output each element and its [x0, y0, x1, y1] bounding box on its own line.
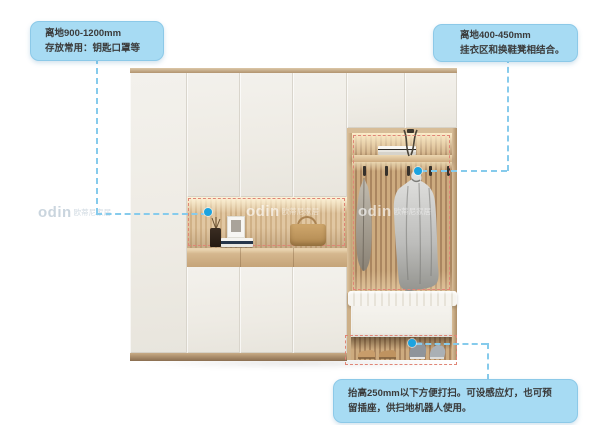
upper-door-2 [240, 73, 293, 197]
lower-door-1 [187, 267, 240, 353]
upper-door-3 [293, 73, 347, 197]
watermark-brand: odin [38, 204, 72, 221]
leader-dot-niche [204, 208, 212, 216]
leader-line-left-vertical [96, 58, 98, 214]
bench-drawer [351, 306, 452, 337]
callout-bottom: 抬高250mm以下方便打扫。可设感应灯，也可预 留插座，供扫地机器人使用。 [333, 379, 578, 423]
handbag [290, 224, 326, 246]
right-upper-door-2 [405, 73, 457, 128]
callout-line: 存放常用：钥匙口罩等 [45, 41, 157, 56]
leader-line-right-horizontal [421, 170, 507, 172]
photo-frame [227, 216, 245, 238]
diffuser-bottle [210, 228, 221, 247]
lower-door-2 [240, 267, 293, 353]
entryway-cabinet-infographic: odin 欧蒂尼家居 odin 欧蒂尼家居 odin 欧蒂尼家居 离地900-1… [0, 0, 610, 425]
right-upper-door-1 [347, 73, 405, 128]
leader-line-bottom-horizontal [416, 343, 487, 345]
callout-line: 离地900-1200mm [45, 26, 157, 41]
drawer-seam-2 [293, 248, 294, 267]
drawer-seam-1 [240, 248, 241, 267]
callout-line: 留插座，供扫地机器人使用。 [348, 401, 569, 416]
upper-door-1 [187, 73, 240, 197]
hanging-umbrella [351, 176, 377, 272]
leader-dot-hooks [414, 167, 422, 175]
leader-dot-shoe-space [408, 339, 416, 347]
callout-top-right: 离地400-450mm 挂衣区和换鞋凳相结合。 [433, 24, 578, 62]
callout-line: 抬高250mm以下方便打扫。可设感应灯，也可预 [348, 386, 569, 401]
callout-line: 离地400-450mm [460, 28, 571, 43]
book-stack [221, 238, 253, 247]
hanging-coat [386, 168, 446, 294]
side-panel [452, 128, 457, 360]
callout-top-left: 离地900-1200mm 存放常用：钥匙口罩等 [30, 21, 164, 61]
leader-line-right-vertical [507, 57, 509, 171]
bench-cushion [348, 291, 457, 306]
hanging-strap-bag [398, 128, 422, 158]
coat-hook-1 [363, 166, 366, 176]
leader-line-bottom-vertical [487, 343, 489, 380]
leader-line-left-horizontal [96, 213, 207, 215]
lower-door-3 [293, 267, 347, 353]
photo [231, 220, 241, 232]
drawer-band [187, 248, 347, 267]
callout-line: 挂衣区和换鞋凳相结合。 [460, 43, 571, 58]
plinth [130, 353, 347, 361]
